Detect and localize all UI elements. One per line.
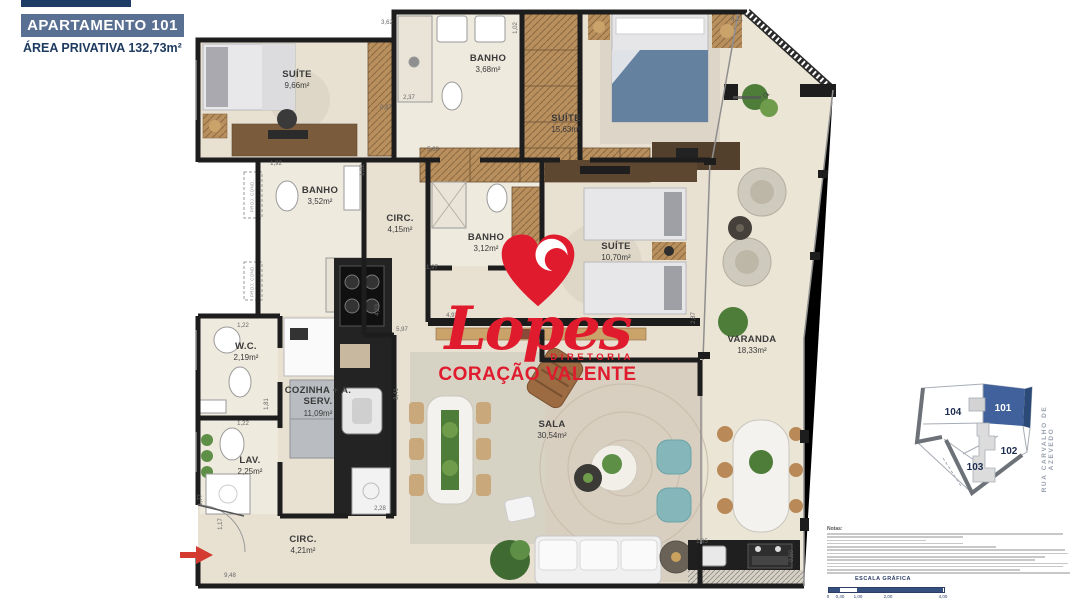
note-line [827, 566, 1063, 568]
entrance-arrow-icon [180, 546, 214, 564]
note-line [827, 572, 1070, 574]
keyplan-unit-101: 101 [995, 403, 1012, 414]
street-name-label: RUA CARVALHO DE AZEVEDO [1041, 384, 1055, 514]
note-line [827, 553, 1068, 555]
brand-name: Lopes [430, 302, 645, 356]
notes-title: Notas: [827, 526, 1075, 532]
scale-tick-040: 0,40 [836, 594, 845, 599]
note-line [827, 546, 996, 548]
note-line [827, 556, 1045, 558]
note-line [827, 540, 926, 542]
note-line [827, 569, 1020, 571]
note-line [827, 563, 1068, 565]
note-line [827, 536, 963, 538]
heart-icon [495, 232, 581, 308]
scale-tick-200: 2,00 [884, 594, 893, 599]
keyplan-unit-103: 103 [967, 462, 984, 473]
key-plan: 104 101 102 103 [903, 378, 1058, 513]
scale-tick-100: 1,00 [854, 594, 863, 599]
brand-tagline-coracao: CORAÇÃO VALENTE [430, 364, 645, 386]
scale-tick-0: 0 [827, 594, 830, 599]
scale-bar [828, 587, 945, 593]
scale-title: ESCALA GRÁFICA [823, 576, 943, 582]
note-line [827, 543, 963, 545]
floor-plan-page: APARTAMENTO 101 ÁREA PRIVATIVA 132,73m² [0, 0, 1080, 608]
scale-tick-400: 4,00 [939, 594, 948, 599]
note-line [827, 559, 1035, 561]
note-line [827, 533, 1063, 535]
notes-block: Notas: [827, 526, 1075, 576]
lopes-logo: Lopes DIRETORIA CORAÇÃO VALENTE [430, 232, 645, 386]
note-line [827, 549, 1065, 551]
keyplan-unit-104: 104 [945, 407, 962, 418]
keyplan-unit-102: 102 [1001, 446, 1018, 457]
